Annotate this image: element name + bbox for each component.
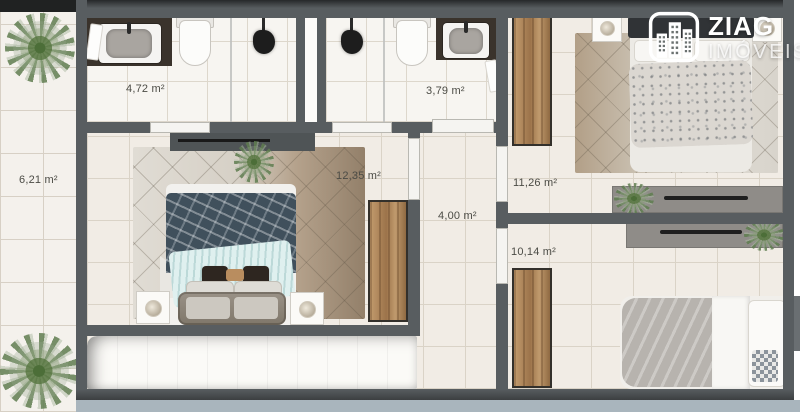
plant-icon bbox=[234, 141, 274, 183]
door-bedroom-2 bbox=[496, 146, 508, 202]
wall bbox=[496, 213, 794, 224]
door-bathroom-2 bbox=[332, 122, 392, 133]
desk-shelf bbox=[660, 230, 742, 234]
desk-shelf bbox=[664, 196, 748, 200]
buildings-icon bbox=[648, 11, 700, 63]
brand-subtitle: IMÓVEIS bbox=[708, 42, 800, 62]
table-lamp-icon bbox=[600, 21, 615, 36]
shower-head-icon bbox=[253, 30, 275, 54]
exterior-wall-stub bbox=[794, 296, 800, 351]
shower-glass-partition bbox=[383, 18, 385, 122]
shower-head-icon bbox=[341, 30, 363, 54]
speckled-duvet bbox=[629, 60, 754, 148]
room-label-bedroom-3: 10,14 m² bbox=[511, 246, 556, 258]
wall bbox=[496, 18, 508, 389]
room-label-bathroom-1: 4,72 m² bbox=[126, 83, 165, 95]
plant-icon bbox=[5, 13, 75, 83]
plant-icon bbox=[614, 183, 654, 214]
door-bathroom-1 bbox=[150, 122, 210, 133]
wall bbox=[76, 389, 794, 400]
built-in-closet bbox=[87, 336, 417, 389]
wardrobe bbox=[512, 268, 552, 388]
wall bbox=[87, 325, 420, 336]
bench-cushion bbox=[234, 297, 278, 319]
shower-glass-partition bbox=[230, 18, 232, 122]
bench-cushion bbox=[186, 297, 230, 319]
room-label-balcony: 6,21 m² bbox=[19, 174, 58, 186]
door-bedroom-3 bbox=[496, 228, 508, 284]
plant-icon bbox=[0, 333, 78, 409]
floor-plan-canvas: 6,21 m² 4,72 m² 3,79 m² 12,35 m² 4,00 m²… bbox=[0, 0, 800, 412]
logo: ZIAG IMÓVEIS bbox=[648, 8, 794, 66]
wall bbox=[76, 0, 87, 400]
faucet-icon bbox=[127, 22, 131, 34]
bed-sheet bbox=[712, 296, 750, 389]
logo-text: ZIAG IMÓVEIS bbox=[708, 13, 800, 62]
foundation-bar bbox=[76, 400, 800, 412]
wardrobe bbox=[512, 16, 552, 146]
checkered-cushion bbox=[752, 350, 778, 382]
room-label-bedroom-2: 11,26 m² bbox=[513, 177, 557, 189]
wall bbox=[317, 18, 326, 122]
balcony-edge-wall bbox=[0, 0, 76, 12]
toilet bbox=[179, 20, 211, 66]
door-hallway bbox=[432, 119, 494, 133]
faucet-icon bbox=[464, 21, 468, 33]
table-lamp-icon bbox=[145, 300, 162, 317]
room-label-hallway: 4,00 m² bbox=[438, 210, 477, 222]
room-label-master-bedroom: 12,35 m² bbox=[336, 170, 381, 182]
table-lamp-icon bbox=[299, 301, 316, 318]
grey-blanket bbox=[622, 298, 714, 387]
ventilation-shaft bbox=[305, 18, 317, 122]
room-label-bathroom-2: 3,79 m² bbox=[426, 85, 465, 97]
brand-name: ZIAG bbox=[708, 13, 800, 39]
wardrobe bbox=[368, 200, 408, 322]
toilet bbox=[396, 20, 428, 66]
door-master-bedroom bbox=[408, 138, 420, 200]
cushion bbox=[226, 269, 244, 281]
wall bbox=[296, 18, 305, 122]
